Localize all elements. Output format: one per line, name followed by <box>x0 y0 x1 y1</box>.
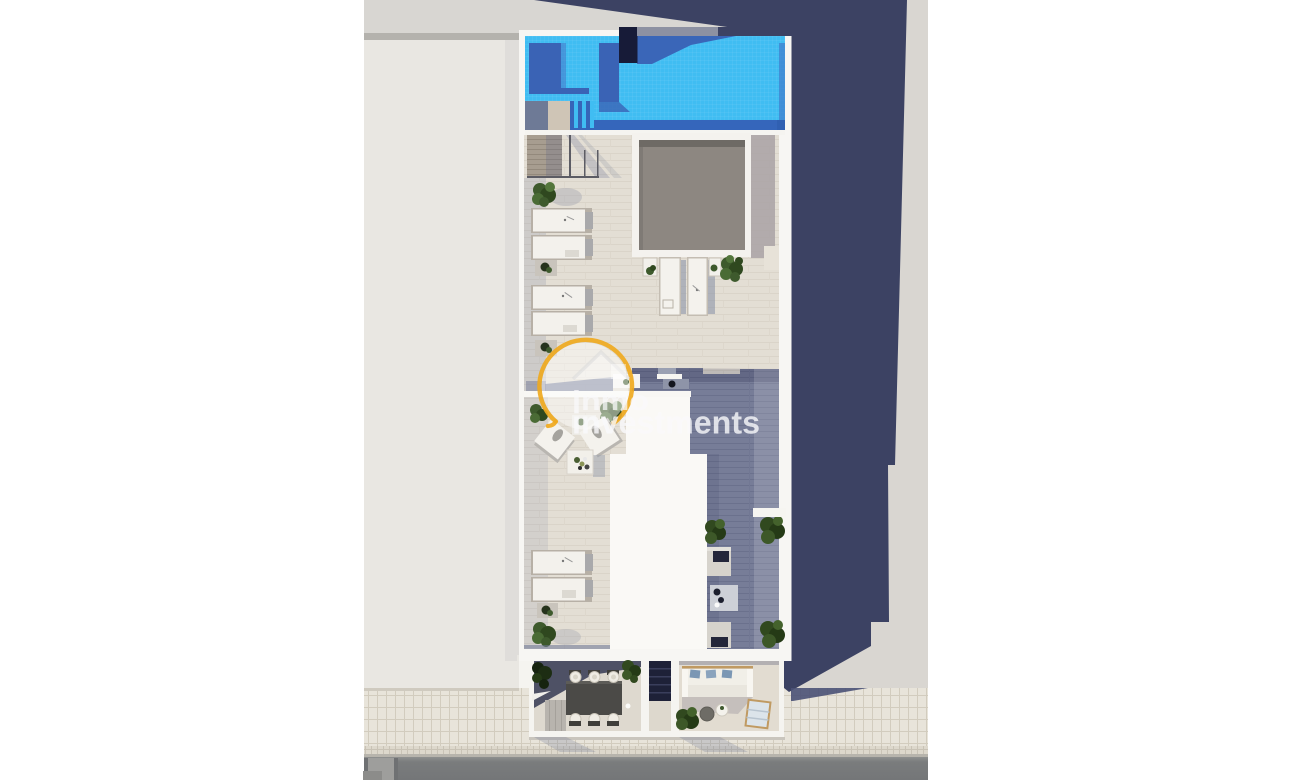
svg-text:investments: investments <box>572 405 760 441</box>
